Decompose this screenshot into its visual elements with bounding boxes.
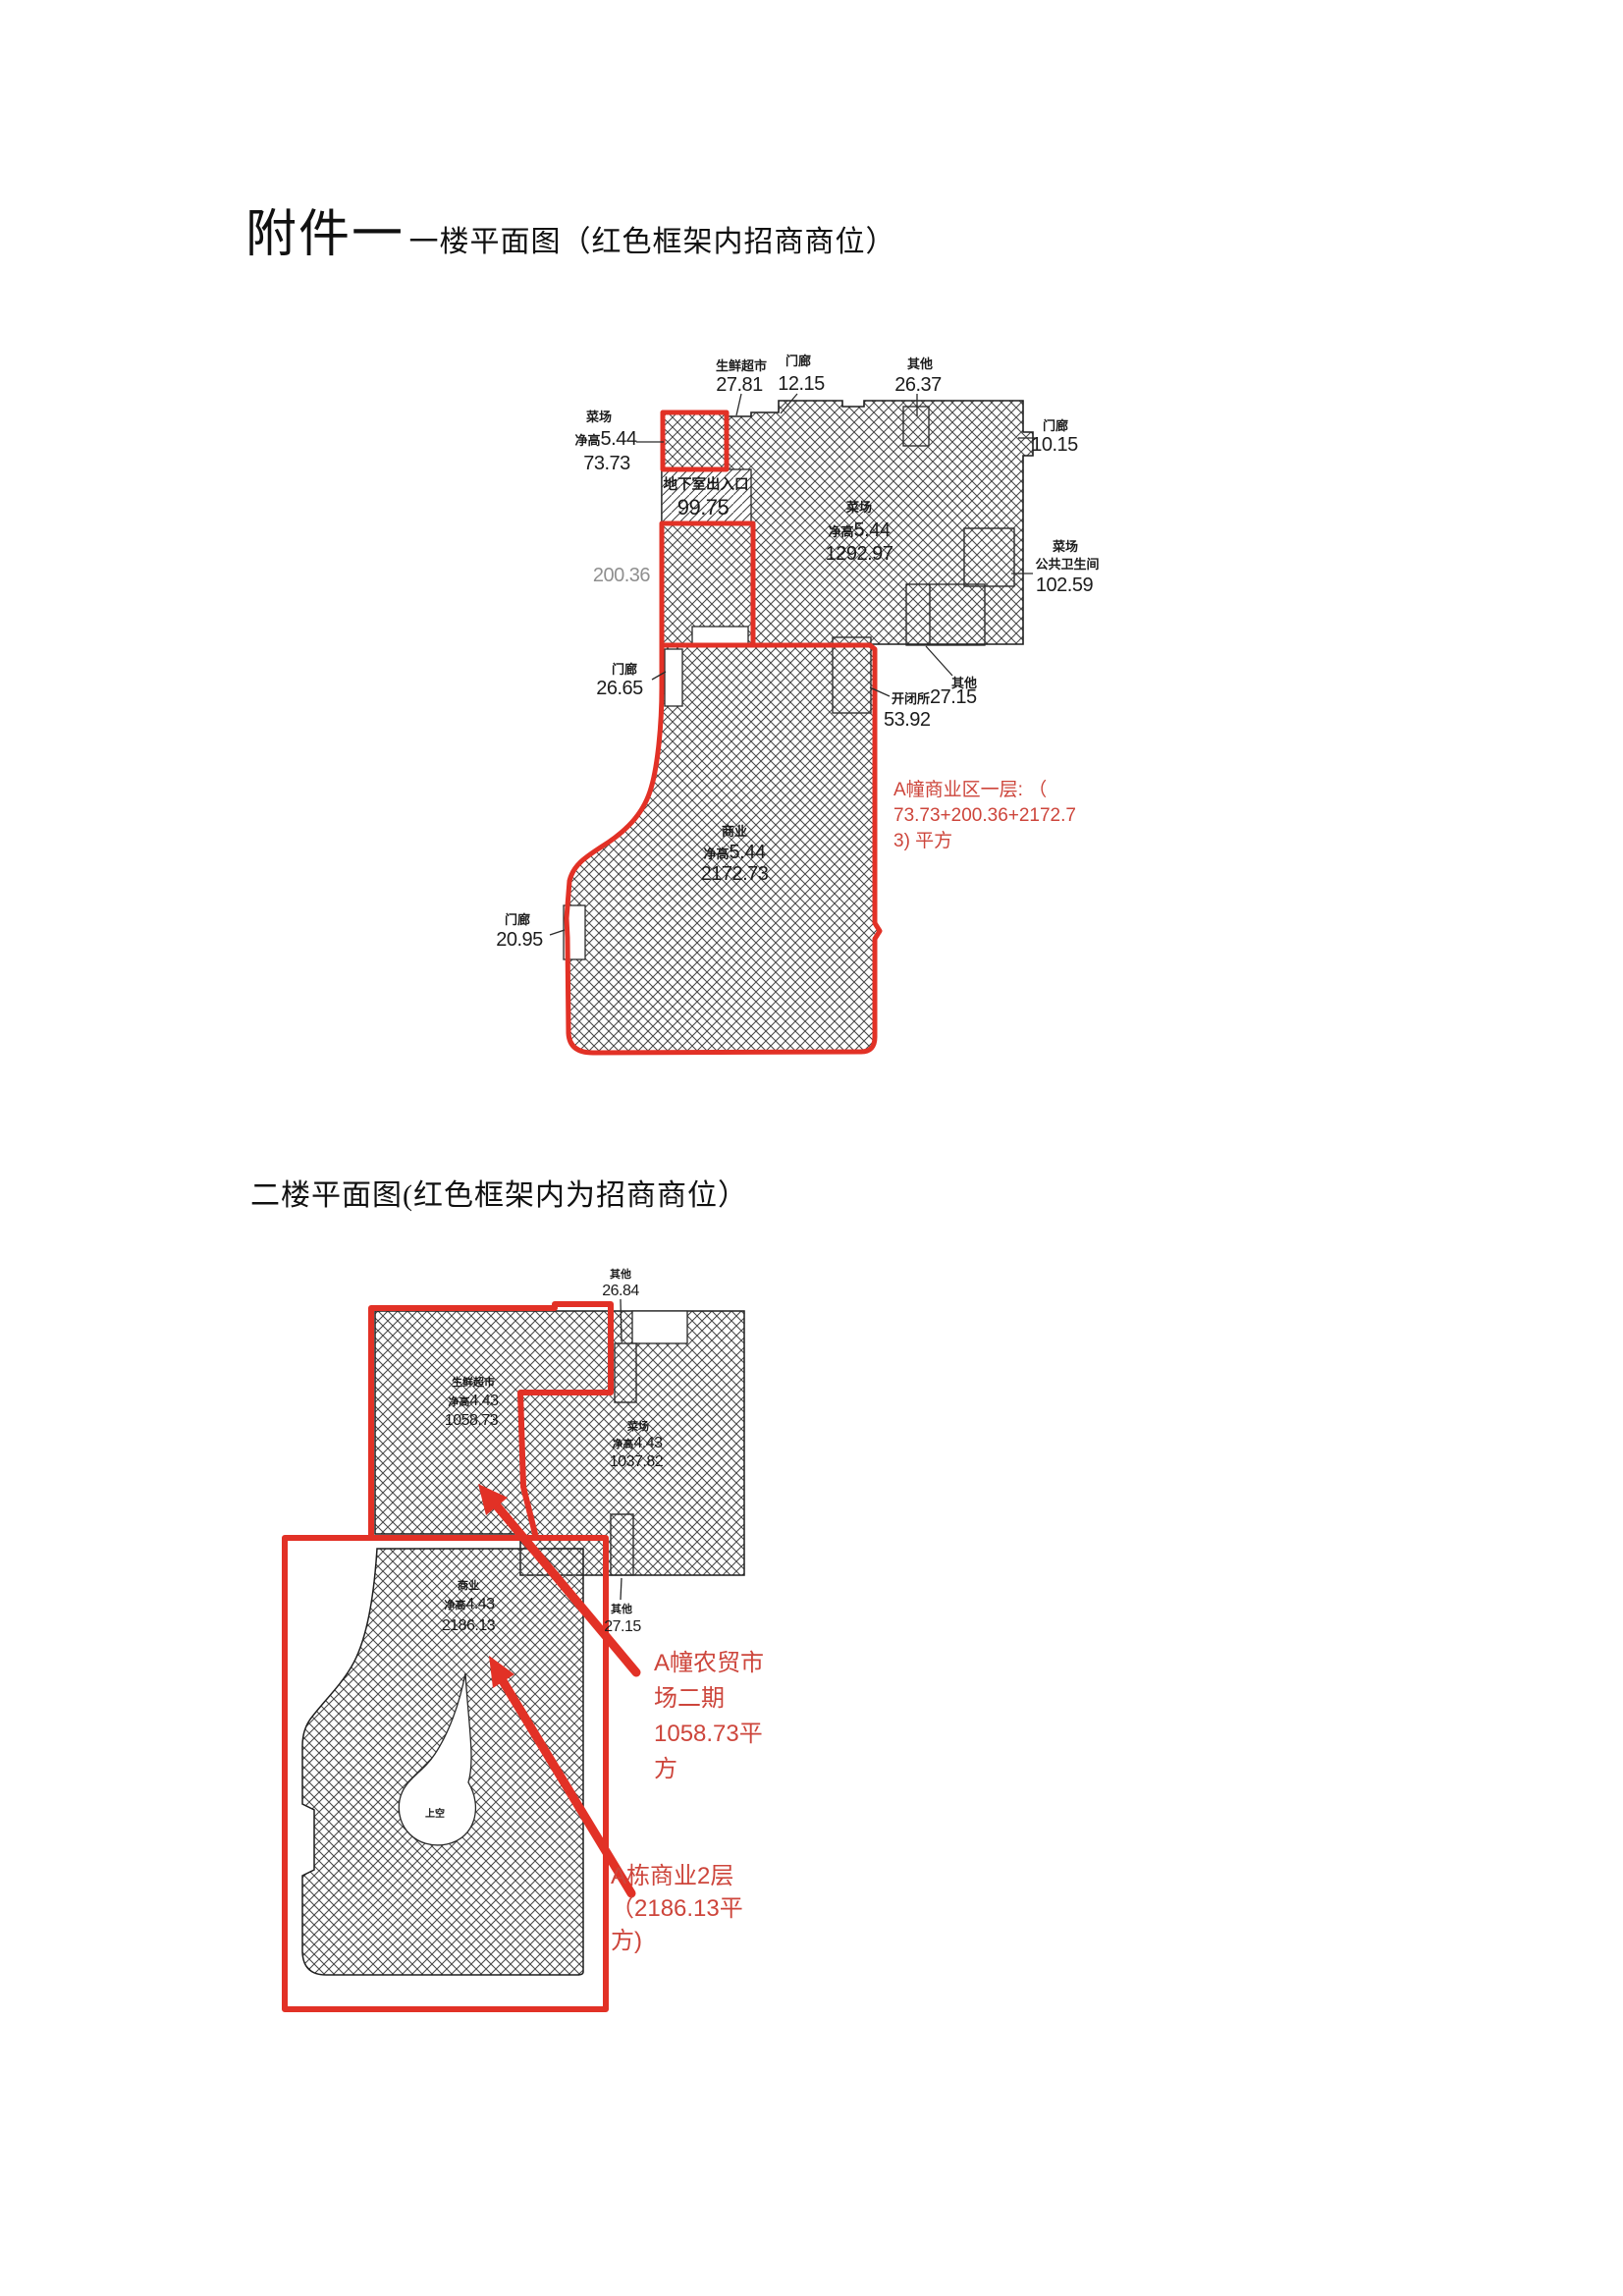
- value-porch-left: 26.65: [596, 678, 643, 699]
- floor1-note-line2: 73.73+200.36+2172.7: [893, 803, 1119, 829]
- label-other-top: 其他: [907, 356, 933, 371]
- floor2-note1-line3: 1058.73平: [654, 1717, 811, 1752]
- label-market-main: 菜场: [845, 500, 872, 515]
- floor1-title: 一楼平面图（红色框架内招商商位）: [408, 226, 895, 258]
- floor2-title: 二楼平面图(红色框架内为招商商位）: [250, 1171, 748, 1214]
- notch-room: [692, 627, 748, 644]
- value-wc: 102.59: [1036, 574, 1094, 596]
- value-commerce-f2: 2186.13: [442, 1617, 496, 1634]
- value-basement: 99.75: [677, 495, 730, 519]
- value-other-top-f2: 26.84: [602, 1283, 639, 1299]
- floor1-red-note: A幢商业区一层: （ 73.73+200.36+2172.7 3) 平方: [893, 778, 1119, 854]
- value-commerce: 2172.73: [701, 863, 769, 885]
- value-market-left: 73.73: [583, 453, 630, 474]
- floor2-red-note-commerce: A栋商业2层 （2186.13平 方): [611, 1860, 787, 1957]
- label-porch-top: 门廊: [785, 354, 811, 368]
- label-porch-right: 门廊: [1043, 418, 1068, 433]
- value-fresh-market-f2: 1058.73: [445, 1412, 499, 1429]
- label-fresh-market: 生鲜超市: [716, 358, 767, 373]
- label-wc: 公共卫生间: [1035, 557, 1099, 572]
- label-commerce-f2: 商业: [458, 1578, 479, 1592]
- document-page: 附件一 一楼平面图（红色框架内招商商位） 二楼平面图(红色框架内为招商商位）: [0, 0, 1623, 2296]
- floor1-note-line3: 3) 平方: [893, 829, 1119, 854]
- floor2-note1-line1: A幢农贸市: [654, 1646, 811, 1681]
- value-porch-top: 12.15: [778, 373, 825, 395]
- label-fresh-market-f2: 生鲜超市: [452, 1375, 495, 1389]
- value-other-mid-f2: 27.15: [604, 1618, 641, 1635]
- floor2-note2-line2: （2186.13平: [611, 1892, 787, 1925]
- top-notch-room: [632, 1311, 687, 1343]
- value-market-main: 1292.97: [826, 543, 893, 565]
- label-commerce: 商业: [722, 824, 747, 839]
- label-switch-station: 开闭所27.15: [892, 686, 977, 708]
- label-basement: 地下室出入口: [664, 475, 749, 493]
- floor2-lower-building: [302, 1549, 583, 1975]
- attachment-title: 附件一: [245, 207, 405, 263]
- floor1-note-line1: A幢商业区一层: （: [893, 778, 1119, 803]
- floor2-red-note-market: A幢农贸市 场二期 1058.73平 方: [654, 1646, 811, 1787]
- floor1-plan: 生鲜超市 27.81 门廊 12.15 其他 26.37 门廊 10.15 菜场…: [488, 344, 1146, 1070]
- value-middle-area: 200.36: [593, 565, 651, 586]
- label-market-f2: 菜场: [626, 1419, 649, 1433]
- floor2-note1-line2: 场二期: [654, 1681, 811, 1717]
- label-porch-left: 门廊: [612, 662, 637, 677]
- label-other-mid-f2: 其他: [611, 1602, 632, 1615]
- value-market-f2: 1037.82: [610, 1453, 664, 1470]
- section1-heading: 附件一 一楼平面图（红色框架内招商商位）: [245, 192, 895, 266]
- value-porch-right: 10.15: [1031, 434, 1078, 456]
- label-other-top-f2: 其他: [610, 1267, 631, 1281]
- height-market-left: 净高5.44: [575, 428, 637, 450]
- porch-left-room: [665, 649, 682, 706]
- label-wc-market: 菜场: [1052, 539, 1078, 554]
- floor2-note2-line3: 方): [611, 1925, 787, 1957]
- value-porch-bottom: 20.95: [496, 929, 543, 951]
- label-void: 上空: [425, 1807, 445, 1820]
- value-fresh-market: 27.81: [716, 374, 763, 396]
- floor2-note2-line1: A栋商业2层: [611, 1860, 787, 1892]
- label-market-left: 菜场: [585, 410, 612, 424]
- value2-switch-station: 53.92: [884, 709, 931, 731]
- label-porch-bottom: 门廊: [505, 912, 530, 927]
- value-other-top: 26.37: [894, 374, 942, 396]
- floor2-note1-line4: 方: [654, 1752, 811, 1787]
